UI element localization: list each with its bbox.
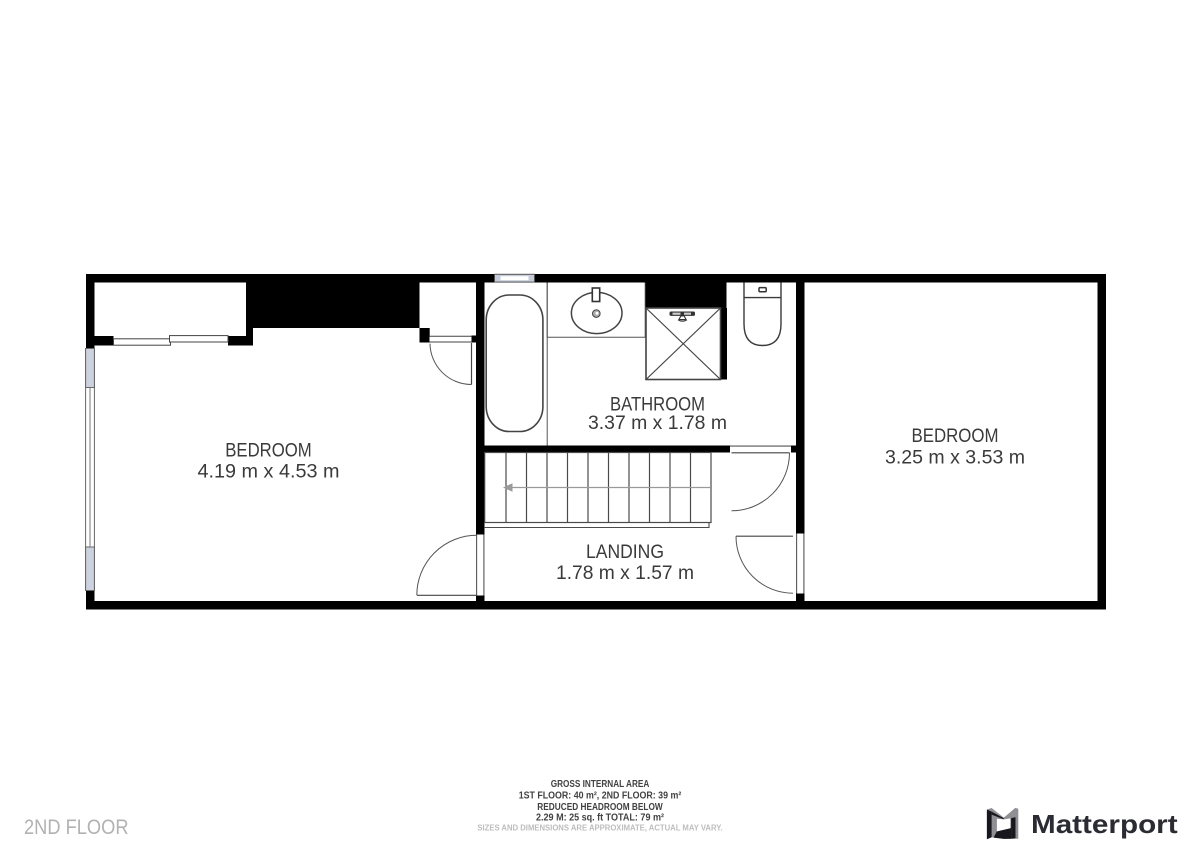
svg-text:4.19 m x 4.53 m: 4.19 m x 4.53 m: [198, 462, 340, 483]
svg-text:1ST FLOOR: 40 m², 2ND FLOOR: 3: 1ST FLOOR: 40 m², 2ND FLOOR: 39 m²: [519, 791, 682, 802]
svg-text:3.25 m x 3.53 m: 3.25 m x 3.53 m: [885, 448, 1025, 469]
svg-text:SIZES AND DIMENSIONS ARE APPRO: SIZES AND DIMENSIONS ARE APPROXIMATE, AC…: [477, 824, 722, 833]
svg-text:2.29 M: 25 sq. ft TOTAL: 79 m²: 2.29 M: 25 sq. ft TOTAL: 79 m²: [536, 812, 665, 823]
svg-text:BEDROOM: BEDROOM: [225, 441, 312, 462]
svg-text:2ND FLOOR: 2ND FLOOR: [24, 816, 129, 839]
svg-text:BEDROOM: BEDROOM: [912, 426, 999, 447]
svg-text:GROSS INTERNAL AREA: GROSS INTERNAL AREA: [551, 779, 650, 790]
svg-text:Matterport: Matterport: [1031, 809, 1178, 839]
svg-text:3.37 m x 1.78 m: 3.37 m x 1.78 m: [588, 413, 727, 434]
svg-text:1.78 m x 1.57 m: 1.78 m x 1.57 m: [556, 563, 694, 584]
svg-text:LANDING: LANDING: [586, 542, 664, 563]
